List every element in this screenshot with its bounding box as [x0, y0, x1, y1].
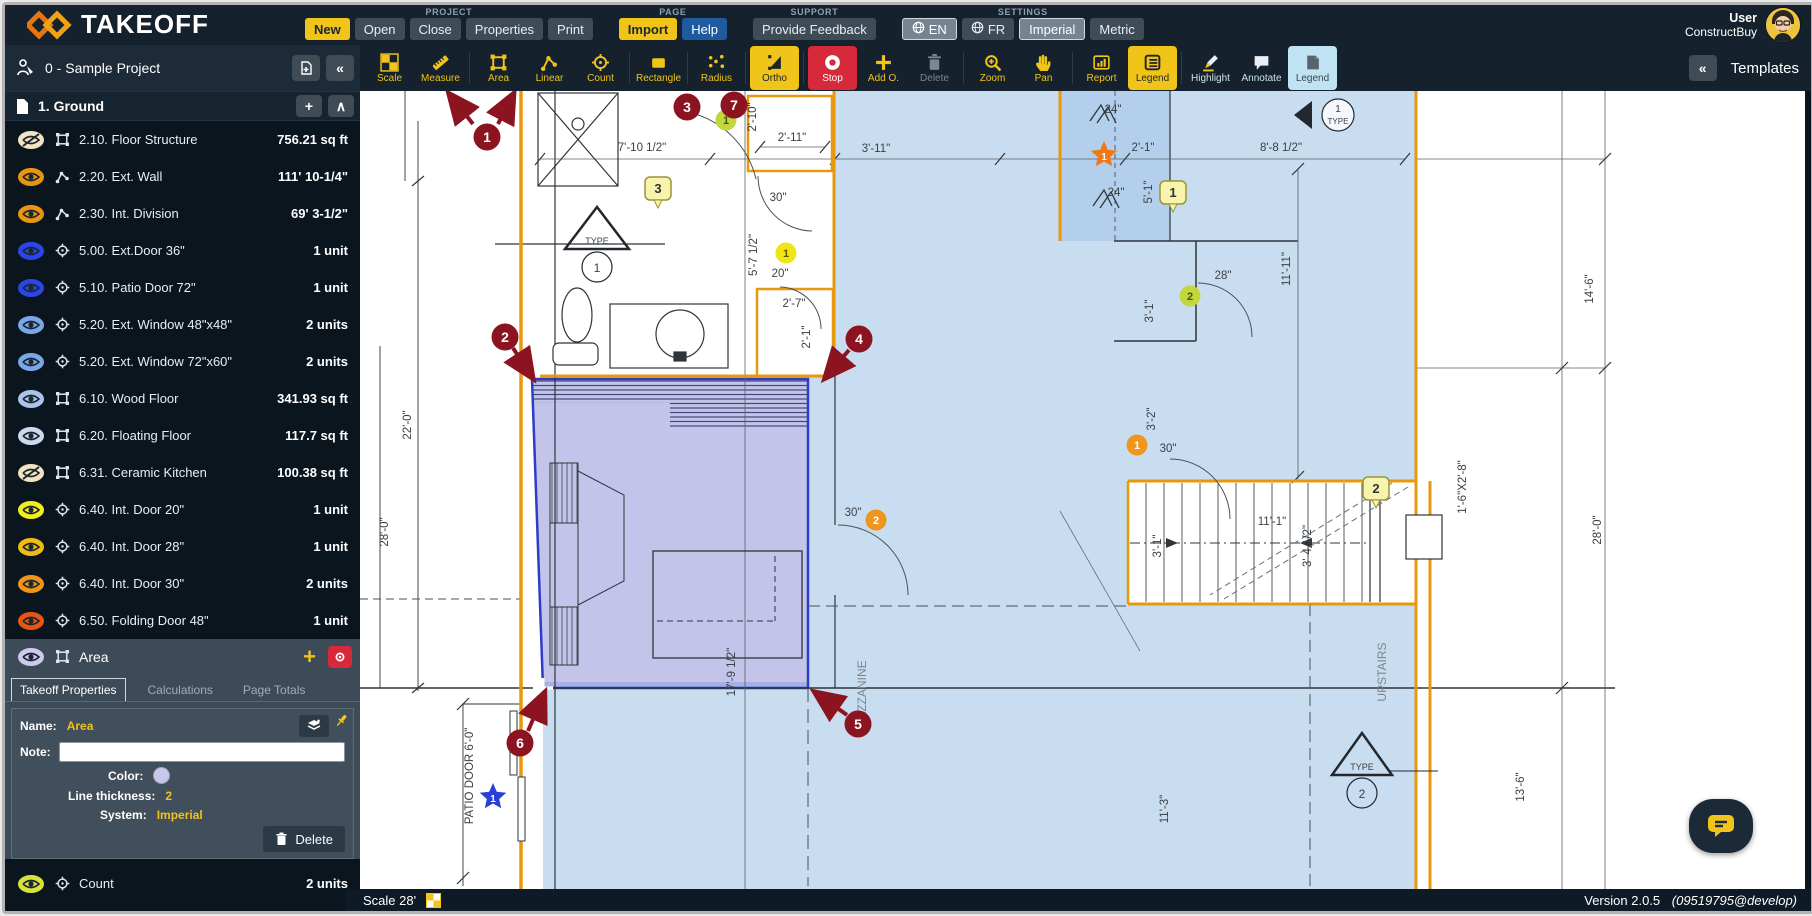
marker-7[interactable]: 7	[721, 92, 748, 119]
count-type-icon	[55, 280, 71, 296]
svg-text:1: 1	[1134, 440, 1140, 452]
count-badge[interactable]: 2	[1180, 286, 1201, 307]
tool-annotate[interactable]: Annotate	[1237, 46, 1286, 90]
visibility-eye-icon[interactable]	[15, 315, 47, 335]
plan-label: 1	[1335, 104, 1341, 115]
plan-label: UPSTAIRS	[1375, 642, 1389, 701]
plan-label: 1'-6"X2'-8"	[1457, 460, 1469, 513]
app-window: TAKEOFF PROJECTNewOpenClosePropertiesPri…	[2, 2, 1812, 914]
system-value[interactable]: Imperial	[157, 808, 203, 822]
count-type-icon	[55, 502, 71, 518]
plan-label: 2'-10"	[747, 102, 759, 131]
note-label: Note:	[20, 745, 51, 759]
visibility-eye-icon[interactable]	[15, 647, 47, 667]
svg-text:2: 2	[873, 515, 879, 527]
tool-linear[interactable]: Linear	[525, 46, 574, 90]
item-label: 6.31. Ceramic Kitchen	[79, 465, 277, 480]
menu-group-label: PAGE	[659, 7, 686, 17]
item-value: 1 unit	[313, 613, 348, 628]
tool-label: Rectangle	[636, 73, 681, 84]
annotate-icon	[1252, 53, 1271, 72]
trash-icon	[275, 832, 288, 846]
tool-label: Highlight	[1191, 73, 1230, 84]
takeoff-item-6-10-wood-floor[interactable]: 6.10. Wood Floor341.93 sq ft	[5, 380, 360, 417]
tool-label: Pan	[1035, 73, 1053, 84]
plan-label: 30"	[845, 507, 862, 519]
menu-group-label: PROJECT	[426, 7, 473, 17]
count-badge[interactable]: 1	[776, 243, 797, 264]
area-type-icon	[55, 132, 71, 148]
tool-add-o-[interactable]: Add O.	[859, 46, 908, 90]
item-value: 69' 3-1/2"	[291, 206, 348, 221]
item-label: 6.10. Wood Floor	[79, 391, 277, 406]
takeoff-item-5-20-ext-window-48-x48-[interactable]: 5.20. Ext. Window 48"x48"2 units	[5, 306, 360, 343]
svg-text:5: 5	[854, 716, 862, 732]
toolbar-separator	[803, 52, 804, 84]
takeoff-logo-icon	[27, 10, 73, 40]
toolbar-separator	[745, 52, 746, 84]
item-value: 1 unit	[313, 539, 348, 554]
chat-bubble-icon	[1707, 814, 1735, 838]
svg-text:3: 3	[654, 181, 661, 196]
menu-button-new[interactable]: New	[305, 18, 350, 40]
takeoff-item-list: 2.10. Floor Structure756.21 sq ft2.20. E…	[5, 121, 360, 639]
plan-label: 11'-3"	[1159, 795, 1171, 823]
add-measure-button[interactable]: +	[297, 643, 322, 671]
app-logo: TAKEOFF	[27, 9, 209, 40]
menu-button-fr[interactable]: FR	[962, 18, 1014, 40]
tool-label: Ortho	[762, 73, 787, 84]
duplicate-layer-button[interactable]	[299, 715, 329, 737]
tool-stop[interactable]: Stop	[808, 46, 857, 90]
globe-icon	[971, 21, 984, 37]
visibility-eye-icon[interactable]	[15, 537, 47, 557]
plan-label: 7'-10 1/2"	[618, 142, 666, 154]
item-value: 100.38 sq ft	[277, 465, 348, 480]
project-icon	[15, 58, 35, 78]
plan-label: 5'-7 1/2"	[748, 234, 760, 276]
plan-label: 28'-0"	[1592, 515, 1604, 544]
plan-label: 20"	[772, 268, 789, 280]
tool-highlight[interactable]: Highlight	[1186, 46, 1235, 90]
note-input[interactable]	[59, 742, 345, 762]
toolbar-separator	[1181, 52, 1182, 84]
menu-group-support: SUPPORTProvide Feedback	[753, 5, 876, 40]
delete-label: Delete	[295, 832, 333, 847]
tool-legend[interactable]: Legend	[1288, 46, 1337, 90]
visibility-eye-icon[interactable]	[15, 204, 47, 224]
menu-button-import[interactable]: Import	[619, 18, 677, 40]
avatar[interactable]	[1765, 7, 1801, 43]
tool-rectangle[interactable]: Rectangle	[634, 46, 683, 90]
tool-report[interactable]: Report	[1077, 46, 1126, 90]
plan-label: 11'-1"	[1258, 516, 1286, 528]
svg-text:1: 1	[483, 129, 491, 145]
build-label: (09519795@develop)	[1672, 893, 1797, 908]
takeoff-item-2-20-ext-wall[interactable]: 2.20. Ext. Wall111' 10-1/4"	[5, 158, 360, 195]
linear-type-icon	[55, 169, 71, 185]
selected-takeoff-panel: Area + Takeoff Properties Calculations P…	[5, 639, 360, 859]
name-label: Name:	[20, 719, 57, 733]
tool-label: Scale	[377, 73, 402, 84]
toolbar-separator	[629, 52, 630, 84]
record-stop-button[interactable]	[328, 646, 352, 668]
collapse-sidebar-button[interactable]: «	[326, 55, 354, 81]
plan-label: 2'-1"	[1132, 142, 1155, 154]
tool-scale[interactable]: Scale	[365, 46, 414, 90]
plan-label: 3'-1"	[1144, 300, 1156, 323]
svg-text:1: 1	[490, 794, 496, 805]
thickness-value[interactable]: 2	[165, 789, 172, 803]
scale-checker-icon	[426, 893, 441, 908]
menu-button-close[interactable]: Close	[410, 18, 461, 40]
item-label: 6.20. Floating Floor	[79, 428, 285, 443]
item-label: 6.40. Int. Door 20"	[79, 502, 313, 517]
tool-zoom[interactable]: Zoom	[968, 46, 1017, 90]
menu-group-label: SETTINGS	[998, 7, 1048, 17]
plan-label: TYPE	[1350, 762, 1374, 772]
takeoff-item-6-40-int-door-28-[interactable]: 6.40. Int. Door 28"1 unit	[5, 528, 360, 565]
measure-icon	[431, 53, 450, 72]
menu-group-page: PAGEImportHelp	[619, 5, 727, 40]
plan-label: 3'-4 1/2"	[1302, 525, 1314, 567]
item-label: 6.40. Int. Door 28"	[79, 539, 313, 554]
templates-collapse-button[interactable]: «	[1689, 55, 1717, 81]
user-role: User	[1729, 11, 1757, 25]
plan-label: TYPE	[585, 236, 609, 246]
svg-text:2: 2	[501, 329, 509, 345]
toolbar: ScaleMeasureAreaLinearCountRectangleRadi…	[360, 45, 1811, 91]
menu-button-metric[interactable]: Metric	[1090, 18, 1143, 40]
item-label: 5.10. Patio Door 72"	[79, 280, 313, 295]
takeoff-item-2-30-int-division[interactable]: 2.30. Int. Division69' 3-1/2"	[5, 195, 360, 232]
item-value: 2 units	[306, 354, 348, 369]
tool-radius[interactable]: Radius	[692, 46, 741, 90]
toolbar-separator	[469, 52, 470, 84]
item-value: 1 unit	[313, 243, 348, 258]
tool-label: Area	[488, 73, 509, 84]
selected-takeoff-name: Area	[79, 649, 297, 665]
name-value[interactable]: Area	[67, 719, 94, 733]
tool-count[interactable]: Count	[576, 46, 625, 90]
add-takeoff-button[interactable]: +	[296, 95, 322, 117]
page-icon	[15, 98, 30, 115]
plan-label: 22'-0"	[402, 410, 414, 439]
item-label: Count	[79, 876, 306, 891]
item-label: 6.50. Folding Door 48"	[79, 613, 313, 628]
main-menu: PROJECTNewOpenClosePropertiesPrintPAGEIm…	[305, 5, 1144, 40]
area-type-icon	[55, 428, 71, 444]
stop-icon	[823, 53, 842, 72]
status-bar: Scale 28' Version 2.0.5 (09519795@develo…	[345, 889, 1811, 911]
item-value: 756.21 sq ft	[277, 132, 348, 147]
user-name: ConstructBuy	[1685, 25, 1757, 39]
version-label: Version 2.0.5	[1584, 893, 1660, 908]
visibility-eye-icon[interactable]	[15, 574, 47, 594]
visibility-eye-icon[interactable]	[15, 130, 47, 150]
count-type-icon	[55, 317, 71, 333]
tab-page-totals[interactable]: Page Totals	[235, 679, 314, 701]
area-type-icon	[55, 465, 71, 481]
count-type-icon	[55, 576, 71, 592]
tool-label: Legend	[1296, 73, 1329, 84]
tool-label: Annotate	[1241, 73, 1281, 84]
plan-label: 28'-0"	[379, 517, 391, 546]
plan-label: 17'-9 1/2"	[726, 648, 738, 696]
tool-label: Report	[1086, 73, 1116, 84]
plan-label: 24"	[1108, 187, 1125, 199]
takeoff-item-6-50-folding-door-48-[interactable]: 6.50. Folding Door 48"1 unit	[5, 602, 360, 639]
plan-label: 8'-8 1/2"	[1260, 142, 1302, 154]
menu-button-open[interactable]: Open	[355, 18, 405, 40]
project-header: 0 - Sample Project «	[5, 45, 360, 91]
visibility-eye-icon[interactable]	[15, 463, 47, 483]
svg-text:2: 2	[1187, 291, 1193, 303]
takeoff-item-5-10-patio-door-72-[interactable]: 5.10. Patio Door 72"1 unit	[5, 269, 360, 306]
tool-measure[interactable]: Measure	[416, 46, 465, 90]
item-value: 2 units	[306, 876, 348, 891]
plan-label: TYPE	[1328, 117, 1349, 126]
radius-icon	[707, 53, 726, 72]
report-icon	[1092, 53, 1111, 72]
ortho-icon	[765, 53, 784, 72]
scale-icon	[380, 53, 399, 72]
svg-text:2: 2	[1372, 481, 1379, 496]
count-type-icon	[55, 243, 71, 259]
item-value: 111' 10-1/4"	[278, 169, 348, 184]
templates-label: Templates	[1731, 60, 1799, 77]
pan-icon	[1034, 53, 1053, 72]
svg-text:1: 1	[1101, 152, 1107, 163]
plan-label: 13'-6"	[1515, 772, 1527, 801]
menu-group-project: PROJECTNewOpenClosePropertiesPrint	[305, 5, 593, 40]
count-badge[interactable]: 2	[866, 510, 887, 531]
toolbar-separator	[687, 52, 688, 84]
visibility-eye-icon[interactable]	[15, 611, 47, 631]
project-title: 0 - Sample Project	[45, 60, 292, 76]
visibility-eye-icon[interactable]	[15, 874, 47, 894]
color-label: Color:	[108, 769, 143, 783]
item-label: 2.20. Ext. Wall	[79, 169, 278, 184]
collapse-group-button[interactable]: ∧	[328, 95, 354, 117]
tool-label: Stop	[822, 73, 843, 84]
scale-indicator[interactable]: Scale 28'	[363, 893, 416, 908]
plan-label: 2'-1"	[801, 326, 813, 349]
item-value: 341.93 sq ft	[277, 391, 348, 406]
plan-label: 3'-1"	[1152, 535, 1164, 558]
plan-label: 2'-7"	[783, 298, 806, 310]
takeoff-item-6-20-floating-floor[interactable]: 6.20. Floating Floor117.7 sq ft	[5, 417, 360, 454]
area-type-icon	[55, 391, 71, 407]
color-swatch[interactable]	[153, 767, 170, 784]
takeoff-sidebar: 1. Ground + ∧ 2.10. Floor Structure756.2…	[5, 91, 360, 911]
visibility-eye-icon[interactable]	[15, 278, 47, 298]
visibility-eye-icon[interactable]	[15, 389, 47, 409]
visibility-eye-icon[interactable]	[15, 911, 47, 912]
linear-type-icon	[55, 206, 71, 222]
tool-delete[interactable]: Delete	[910, 46, 959, 90]
user-box[interactable]: User ConstructBuy	[1685, 7, 1801, 43]
legendnote-icon	[1303, 53, 1322, 72]
svg-text:1: 1	[783, 248, 789, 260]
count-type-icon	[55, 539, 71, 555]
count-type-icon	[55, 354, 71, 370]
tool-area[interactable]: Area	[474, 46, 523, 90]
takeoff-item-6-40-int-door-30-[interactable]: 6.40. Int. Door 30"2 units	[5, 565, 360, 602]
tool-label: Zoom	[980, 73, 1006, 84]
count-type-icon	[55, 613, 71, 629]
zoom-icon	[983, 53, 1002, 72]
tool-label: Add O.	[868, 73, 899, 84]
bottom-takeoff-list: Count2 unitsLongueur16' 7"	[5, 865, 360, 911]
plan-label: 2'-11"	[778, 132, 806, 144]
visibility-eye-icon[interactable]	[15, 352, 47, 372]
takeoff-item-count[interactable]: Count2 units	[5, 865, 360, 902]
top-menu-bar: TAKEOFF PROJECTNewOpenClosePropertiesPri…	[5, 5, 1811, 45]
menu-group-label: SUPPORT	[791, 7, 839, 17]
count-icon	[591, 53, 610, 72]
tool-legend[interactable]: Legend	[1128, 46, 1177, 90]
page-group-header[interactable]: 1. Ground + ∧	[5, 91, 360, 121]
plan-label: 1	[594, 261, 601, 275]
tab-calculations[interactable]: Calculations	[140, 679, 221, 701]
pin-icon[interactable]	[334, 713, 349, 728]
properties-fieldbox: Name: Area Note: Color: Line thickness:	[11, 708, 354, 859]
visibility-eye-icon[interactable]	[15, 500, 47, 520]
toolbar-separator	[1072, 52, 1073, 84]
plan-label: 5'-1"	[1143, 181, 1155, 204]
plan-canvas[interactable]: 7'-10 1/2"2'-11"3'-11"2'-1"8'-8 1/2"24"2…	[360, 91, 1805, 889]
tool-label: Linear	[536, 73, 564, 84]
item-label: 5.20. Ext. Window 72"x60"	[79, 354, 306, 369]
thickness-label: Line thickness:	[68, 789, 155, 803]
highlight-icon	[1201, 53, 1220, 72]
menu-button-help[interactable]: Help	[682, 18, 727, 40]
item-value: 2 units	[306, 317, 348, 332]
area-type-icon	[55, 649, 71, 665]
item-label: 5.20. Ext. Window 48"x48"	[79, 317, 306, 332]
plan-label: 28"	[1215, 270, 1232, 282]
tool-label: Legend	[1136, 73, 1169, 84]
menu-button-print[interactable]: Print	[548, 18, 593, 40]
legendlist-icon	[1143, 53, 1162, 72]
item-label: 5.00. Ext.Door 36"	[79, 243, 313, 258]
svg-text:3: 3	[683, 99, 691, 115]
tool-label: Delete	[920, 73, 949, 84]
item-label: 2.30. Int. Division	[79, 206, 291, 221]
rectangle-icon	[649, 53, 668, 72]
visibility-eye-icon[interactable]	[15, 167, 47, 187]
item-label: 2.10. Floor Structure	[79, 132, 277, 147]
svg-text:4: 4	[855, 331, 863, 347]
tab-takeoff-properties[interactable]: Takeoff Properties	[11, 678, 126, 701]
plan-label: 3'-11"	[862, 143, 890, 155]
takeoff-item-5-00-ext-door-36-[interactable]: 5.00. Ext.Door 36"1 unit	[5, 232, 360, 269]
svg-text:6: 6	[516, 735, 524, 751]
item-value: 2 units	[306, 576, 348, 591]
count-badge[interactable]: 1	[1127, 435, 1148, 456]
page-group-title: 1. Ground	[38, 98, 296, 114]
menu-button-properties[interactable]: Properties	[466, 18, 543, 40]
takeoff-item-5-20-ext-window-72-x60-[interactable]: 5.20. Ext. Window 72"x60"2 units	[5, 343, 360, 380]
floor-plan-drawing[interactable]: 7'-10 1/2"2'-11"3'-11"2'-1"8'-8 1/2"24"2…	[360, 91, 1805, 889]
visibility-eye-icon[interactable]	[15, 241, 47, 261]
marker-3[interactable]: 3	[674, 94, 701, 121]
plus-icon	[874, 53, 893, 72]
app-title: TAKEOFF	[81, 9, 209, 40]
menu-button-imperial[interactable]: Imperial	[1019, 18, 1085, 40]
item-value: 117.7 sq ft	[285, 428, 348, 443]
plan-label: 3'-2"	[1146, 408, 1158, 431]
tool-ortho[interactable]: Ortho	[750, 46, 799, 90]
tool-label: Count	[587, 73, 614, 84]
system-label: System:	[100, 808, 147, 822]
toolbar-separator	[963, 52, 964, 84]
selected-takeoff-row[interactable]: Area +	[5, 639, 360, 675]
tool-label: Measure	[421, 73, 460, 84]
plan-label: 24"	[1105, 104, 1122, 116]
menu-group-settings: SETTINGSENFRImperialMetric	[902, 5, 1144, 40]
takeoff-item-longueur[interactable]: Longueur16' 7"	[5, 902, 360, 911]
plan-label: 11'-11"	[1281, 252, 1293, 286]
visibility-eye-icon[interactable]	[15, 426, 47, 446]
svg-text:7: 7	[730, 97, 738, 113]
item-label: 6.40. Int. Door 30"	[79, 576, 306, 591]
plan-label: 30"	[1160, 443, 1177, 455]
count-type-icon	[55, 876, 71, 892]
delete-takeoff-button[interactable]: Delete	[263, 826, 345, 852]
plan-label: 2	[1359, 787, 1366, 801]
properties-tabs: Takeoff Properties Calculations Page Tot…	[5, 675, 360, 702]
item-value: 1 unit	[313, 280, 348, 295]
plan-label: 30"	[770, 192, 787, 204]
tool-label: Radius	[701, 73, 732, 84]
svg-text:1: 1	[1169, 185, 1176, 200]
takeoff-item-6-31-ceramic-kitchen[interactable]: 6.31. Ceramic Kitchen100.38 sq ft	[5, 454, 360, 491]
menu-button-provide-feedback[interactable]: Provide Feedback	[753, 18, 876, 40]
chat-support-button[interactable]	[1689, 799, 1753, 853]
takeoff-item-6-40-int-door-20-[interactable]: 6.40. Int. Door 20"1 unit	[5, 491, 360, 528]
globe-icon	[912, 21, 925, 37]
templates-panel-toggle: « Templates	[1689, 45, 1799, 91]
plan-label: PATIO DOOR 6'-0"	[464, 728, 476, 825]
area-icon	[489, 53, 508, 72]
trash-icon	[925, 53, 944, 72]
plan-label: 14'-6"	[1584, 274, 1596, 303]
item-value: 1 unit	[313, 502, 348, 517]
menu-button-en[interactable]: EN	[902, 18, 957, 40]
add-page-button[interactable]	[292, 55, 320, 81]
linear-icon	[540, 53, 559, 72]
tool-pan[interactable]: Pan	[1019, 46, 1068, 90]
takeoff-item-2-10-floor-structure[interactable]: 2.10. Floor Structure756.21 sq ft	[5, 121, 360, 158]
